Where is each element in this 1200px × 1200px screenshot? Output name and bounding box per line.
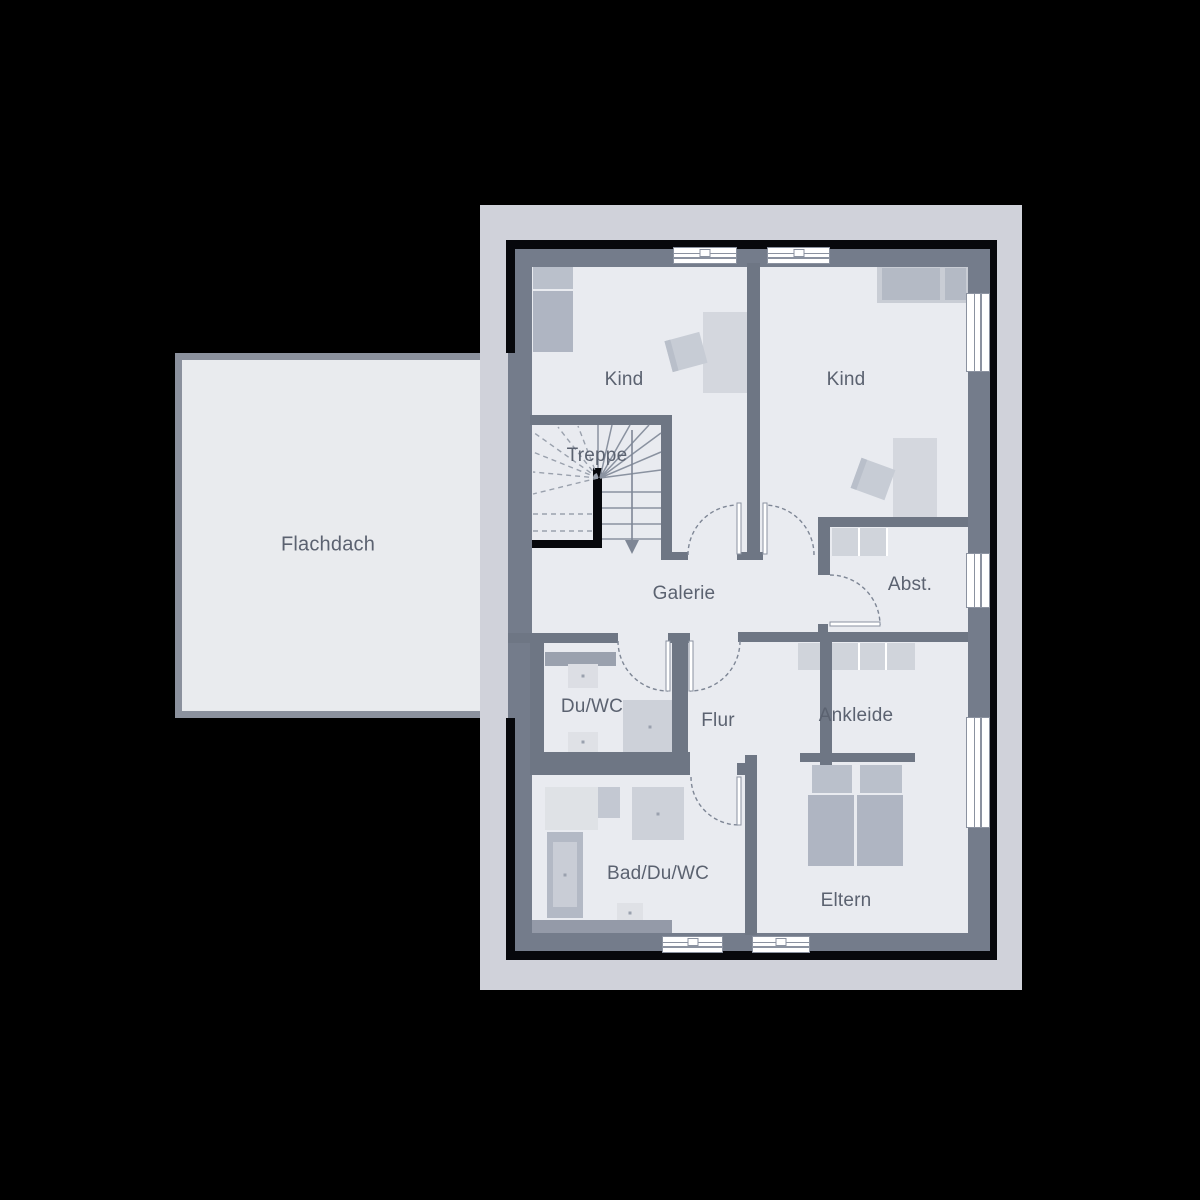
floor-plan-canvas: Flachdach Kind Kind Treppe Galerie Abst.… xyxy=(0,0,1200,1200)
stair-treads-dashed xyxy=(533,426,598,531)
door-leaf-flur xyxy=(689,641,693,691)
door-arc-flur xyxy=(690,641,740,691)
door-arc-kind-left xyxy=(688,505,738,555)
door-leaf-abst xyxy=(830,622,880,626)
door-arc-bad xyxy=(691,777,739,825)
room-label-eltern: Eltern xyxy=(821,890,872,912)
room-label-ankleide: Ankleide xyxy=(819,705,893,727)
door-leaf-bad xyxy=(737,777,741,825)
room-label-duwc: Du/WC xyxy=(561,696,623,718)
plan-linework xyxy=(0,0,1200,1200)
room-label-flachdach: Flachdach xyxy=(281,534,375,557)
room-label-flur: Flur xyxy=(701,710,735,732)
room-label-abstellraum: Abst. xyxy=(888,574,932,596)
door-arc-kind-right xyxy=(764,505,814,555)
room-label-kind-left: Kind xyxy=(605,369,644,391)
room-label-galerie: Galerie xyxy=(653,583,716,605)
room-label-bad-du-wc: Bad/Du/WC xyxy=(607,863,709,885)
door-arc-duwc xyxy=(618,641,668,691)
door-leaf-kind-left xyxy=(737,503,741,554)
room-label-kind-right: Kind xyxy=(827,369,866,391)
door-arc-abst xyxy=(830,575,880,625)
stair-treads-solid xyxy=(598,425,661,539)
door-leaf-duwc xyxy=(666,641,670,691)
door-leaf-kind-right xyxy=(763,503,767,554)
room-label-treppe: Treppe xyxy=(567,445,628,467)
